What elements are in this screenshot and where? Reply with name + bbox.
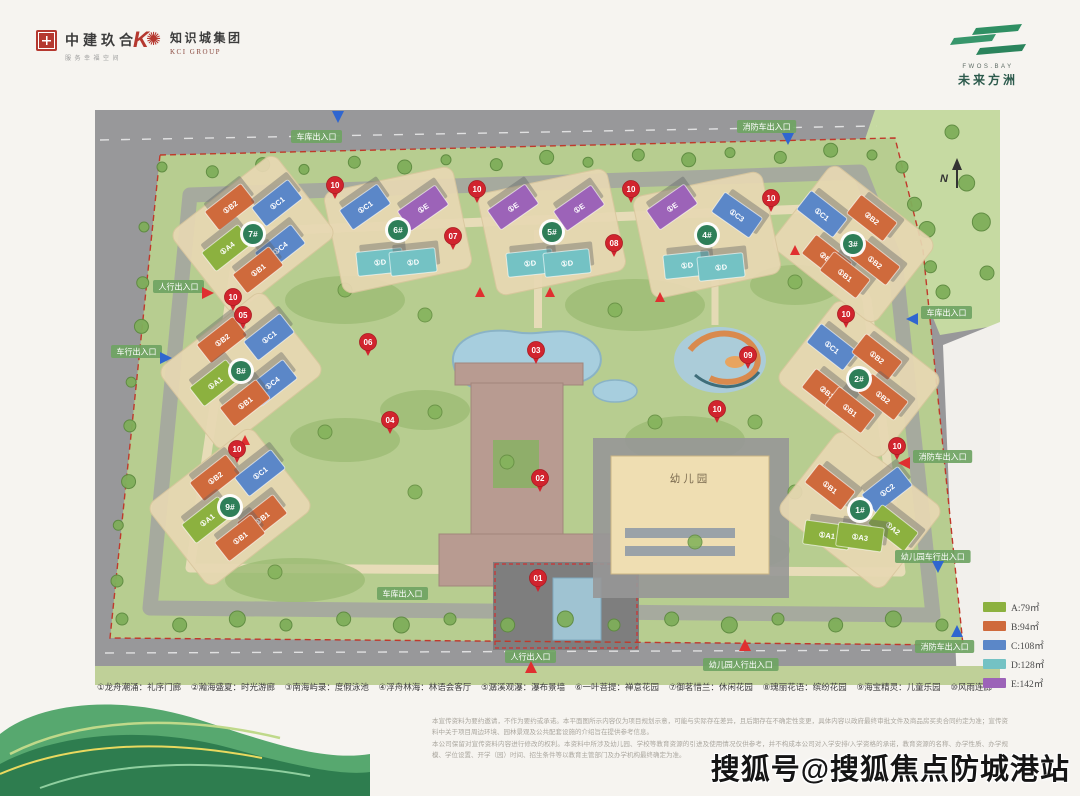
svg-text:①D: ①D [374,257,388,267]
svg-text:03: 03 [532,346,541,355]
svg-text:6#: 6# [393,225,403,235]
amenity-item: ⑥一叶菩提：禅意花园 [575,681,659,693]
svg-text:10: 10 [713,405,722,414]
svg-text:05: 05 [239,311,248,320]
building-badge: 6# [385,217,411,243]
building-badge: 2# [846,366,872,392]
amenity-item: ④浮舟林海：林语会客厅 [379,681,472,693]
fwos-name: 未来方洲 [936,71,1040,88]
leaf-decoration [0,692,370,796]
svg-text:10: 10 [233,445,242,454]
svg-text:车库出入口: 车库出入口 [927,308,967,318]
svg-text:10: 10 [331,181,340,190]
cscec-seal-icon [36,30,57,51]
svg-text:人行出入口: 人行出入口 [511,652,551,662]
kci-name: 知识城集团 [170,29,243,46]
legend-row: A:79㎡ [983,600,1044,614]
legend-swatch-d [983,659,1006,669]
site-plan-svg: 幼儿园①B1①C2①A2①A1①A3①C1①B2②B1①B1①B2①C1②B2②… [95,110,1000,685]
svg-text:10: 10 [627,185,636,194]
amenity-item: ⑤潺溪观瀑：瀑布景墙 [481,681,565,693]
svg-text:02: 02 [536,474,545,483]
svg-text:09: 09 [744,351,753,360]
cscec-name: 中建玖合 [65,30,137,50]
svg-text:3#: 3# [848,239,858,249]
svg-text:人行出入口: 人行出入口 [159,282,199,292]
entrance-label: 消防车出入口 [737,120,796,133]
amenity-item: ⑨海宝精灵：儿童乐园 [857,681,941,693]
entrance-label: 车库出入口 [291,130,342,143]
svg-text:9#: 9# [225,502,235,512]
kci-logo: K✺ 知识城集团 KCI GROUP [133,29,243,56]
svg-text:N: N [940,173,949,185]
building-badge: 1# [847,497,873,523]
svg-text:8#: 8# [236,366,246,376]
svg-text:4#: 4# [702,230,712,240]
svg-text:04: 04 [386,416,395,425]
building-badge: 4# [694,222,720,248]
svg-text:1#: 1# [855,505,865,515]
svg-text:10: 10 [767,194,776,203]
building-badge: 3# [840,231,866,257]
building-unit: ①D [542,241,595,277]
legend-swatch-c [983,640,1006,650]
area-legend: A:79㎡ B:94㎡ C:108㎡ D:128㎡ E:142㎡ [983,600,1044,695]
legend-row: B:94㎡ [983,619,1044,633]
svg-text:消防车出入口: 消防车出入口 [743,122,791,132]
legend-row: C:108㎡ [983,638,1044,652]
svg-text:①D: ①D [715,262,729,272]
svg-text:①D: ①D [407,257,421,267]
svg-text:①D: ①D [524,258,538,268]
fwos-brand: FWOS.BAY [936,64,1040,70]
flyer-page: 中建玖合 服务幸福空间 K✺ 知识城集团 KCI GROUP FWOS.BAY … [0,0,1080,796]
entrance-label: 人行出入口 [153,280,204,293]
entrance-label: 车行出入口 [111,345,162,358]
svg-text:10: 10 [229,293,238,302]
legend-swatch-a [983,602,1006,612]
svg-text:2#: 2# [854,374,864,384]
cscec-logo: 中建玖合 服务幸福空间 [36,30,137,62]
svg-text:消防车出入口: 消防车出入口 [919,452,967,462]
svg-text:10: 10 [473,185,482,194]
svg-text:10: 10 [893,442,902,451]
fwos-logo: FWOS.BAY 未来方洲 [936,22,1040,88]
legend-row: E:142㎡ [983,676,1044,690]
svg-text:10: 10 [842,310,851,319]
svg-text:7#: 7# [248,229,258,239]
building-badge: 7# [240,221,266,247]
svg-text:01: 01 [534,574,543,583]
entrance-label: 车库出入口 [921,306,972,319]
svg-text:①D: ①D [681,260,695,270]
svg-text:07: 07 [449,232,458,241]
building-badge: 9# [217,494,243,520]
svg-text:幼儿园车行出入口: 幼儿园车行出入口 [901,552,965,562]
svg-text:车行出入口: 车行出入口 [117,347,157,357]
svg-text:08: 08 [610,239,619,248]
legend-row: D:128㎡ [983,657,1044,671]
kci-mark-icon: K✺ [133,29,165,55]
legend-swatch-e [983,678,1006,688]
legend-swatch-b [983,621,1006,631]
svg-text:车库出入口: 车库出入口 [297,132,337,142]
svg-text:消防车出入口: 消防车出入口 [921,642,969,652]
building-badge: 5# [539,219,565,245]
entrance-label: 幼儿园人行出入口 [703,658,779,671]
entrance-label: 消防车出入口 [913,450,972,463]
fwos-stripes-icon [936,22,1040,58]
amenity-item: ⑧瑰丽花语：缤纷花园 [763,681,847,693]
entrance-label: 消防车出入口 [915,640,974,653]
building-unit: ①D [696,245,749,281]
cscec-tagline: 服务幸福空间 [65,53,137,62]
svg-text:车库出入口: 车库出入口 [383,589,423,599]
entrance-label: 人行出入口 [505,650,556,663]
entrance-label: 车库出入口 [377,587,428,600]
disclaimer-line: 本宣传资料为要约邀请，不作为要约或承诺。本平面图所示内容仅为项目规划示意，可能与… [432,716,1008,739]
kindergarten-label: 幼儿园 [670,472,711,485]
svg-text:幼儿园人行出入口: 幼儿园人行出入口 [709,660,773,670]
amenity-item: ⑦御茗惜兰：休闲花园 [669,681,753,693]
svg-text:①D: ①D [561,258,575,268]
svg-text:5#: 5# [547,227,557,237]
building-badge: 8# [228,358,254,384]
svg-text:06: 06 [364,338,373,347]
kci-subtitle: KCI GROUP [170,48,243,56]
watermark-text: 搜狐号@搜狐焦点防城港站 [711,746,1070,788]
building-unit: ①D [388,240,441,276]
site-plan-map: 幼儿园①B1①C2①A2①A1①A3①C1①B2②B1①B1①B2①C1②B2②… [95,110,1000,685]
